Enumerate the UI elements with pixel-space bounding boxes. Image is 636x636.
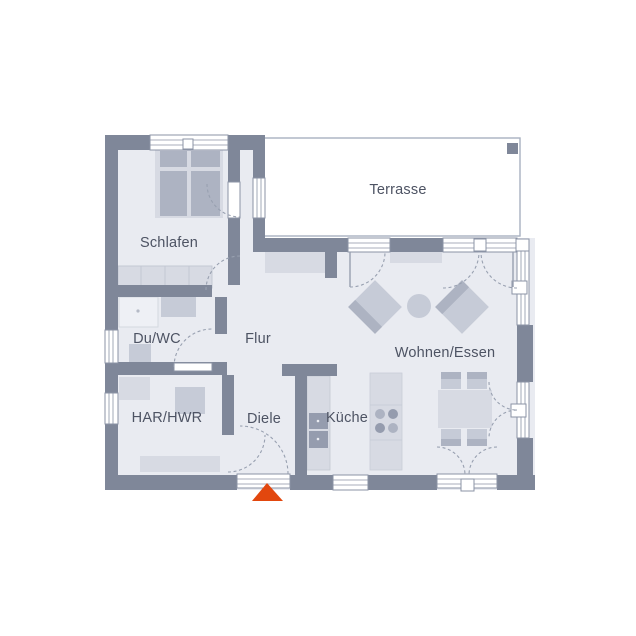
floor-plan-canvas: Schlafen Terrasse Du/WC Flur HAR/HWR Die… (0, 0, 636, 636)
bedroom-east-wall (228, 150, 240, 182)
tv-lowboard (390, 252, 442, 263)
washing-machine (119, 377, 150, 400)
bedroom-south-wall (118, 285, 212, 297)
label-schlafen: Schlafen (140, 235, 198, 251)
utility-east-wall (222, 375, 234, 435)
bath-door-leaf (174, 363, 212, 371)
double-bed (155, 148, 223, 218)
kitchen-stub-wall (282, 364, 337, 376)
label-harhwr: HAR/HWR (132, 410, 203, 426)
bath-east-wall (215, 297, 227, 334)
label-diele: Diele (247, 411, 281, 427)
shower-drain (136, 309, 139, 312)
dining-french-door-bottom (437, 474, 497, 491)
sideboard (265, 252, 325, 273)
label-terrasse: Terrasse (369, 182, 426, 198)
hall-kitchen-wall (295, 376, 307, 475)
terrace-french-doors (443, 238, 529, 252)
bedroom-door-opening (228, 182, 240, 218)
corridor-stub-wall (325, 252, 337, 278)
terrace-glass-door (348, 238, 390, 252)
kitchen-window (333, 475, 368, 490)
label-kueche: Küche (326, 410, 368, 426)
terrace-side-window (253, 178, 265, 218)
floor-plan-page: Schlafen Terrasse Du/WC Flur HAR/HWR Die… (0, 0, 636, 636)
dining-table (438, 390, 492, 428)
label-wohnenessen: Wohnen/Essen (395, 345, 495, 361)
kitchen-island (370, 373, 402, 470)
bedroom-east-wall (228, 218, 240, 285)
terrace-corner-post (507, 143, 518, 154)
bedroom-window (150, 135, 228, 150)
label-duwc: Du/WC (133, 331, 181, 347)
bath-window (105, 330, 118, 363)
utility-window (105, 393, 118, 424)
wardrobe (118, 266, 212, 288)
coffee-table (407, 294, 431, 318)
entrance-door (237, 474, 290, 488)
utility-counter (140, 456, 220, 472)
washbasin (161, 297, 196, 317)
label-flur: Flur (245, 331, 271, 347)
